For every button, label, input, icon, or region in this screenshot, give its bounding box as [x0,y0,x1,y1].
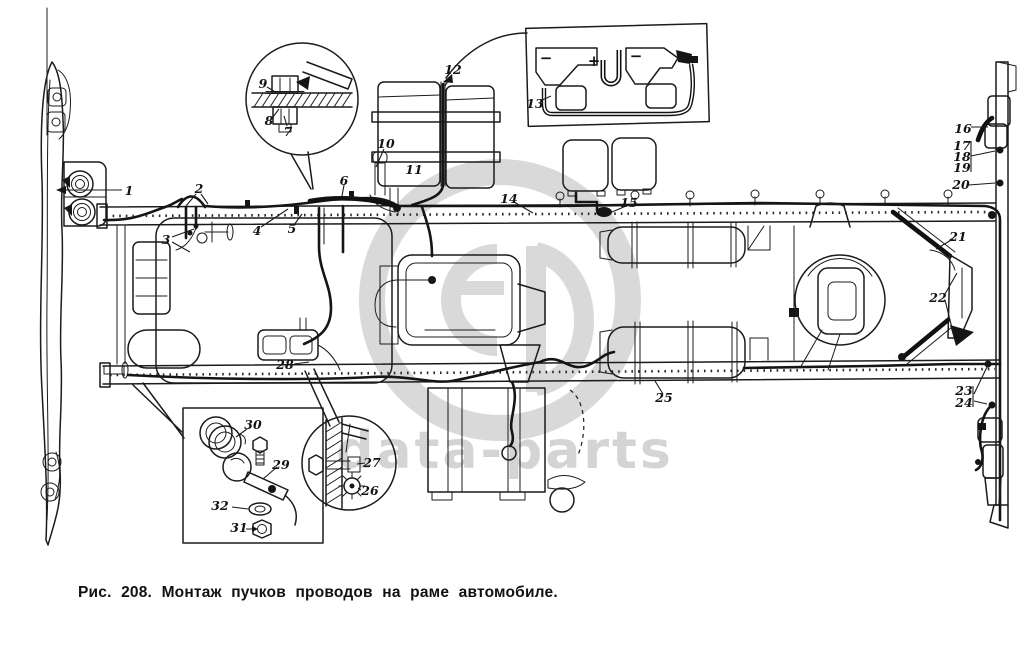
callout-19: 19 [953,160,971,175]
battery-schematic-inset: − + − [526,24,710,127]
tail-lamp-upper [978,96,1010,148]
callout-29: 29 [271,457,290,472]
callout-13: 13 [526,96,544,111]
callout-4: 4 [253,223,262,238]
battery-minus-2: − [630,47,643,65]
callout-32: 32 [211,498,229,513]
callout-16: 16 [954,121,972,136]
callout-9: 9 [259,76,268,91]
callout-6: 6 [340,173,349,188]
callout-2: 2 [194,181,204,196]
callout-5: 5 [288,221,297,236]
callout-12: 12 [444,62,462,77]
chassis-wiring-diagram: data-parts [0,0,1021,652]
callout-30: 30 [244,417,262,432]
battery-minus-1: − [540,49,553,67]
callout-21: 21 [948,229,966,244]
callout-20: 20 [951,177,970,192]
callout-28: 28 [275,357,294,372]
callout-15: 15 [620,195,637,210]
callout-10: 10 [377,136,395,151]
callout-24: 24 [954,395,972,410]
callout-7: 7 [284,124,293,139]
headlights [56,162,106,226]
callout-8: 8 [265,113,274,128]
spare-wheel [795,203,885,370]
callout-31: 31 [230,520,247,535]
callout-22: 22 [928,290,947,305]
callout-14: 14 [500,191,517,206]
figure-page: data-parts [0,0,1021,652]
callout-1: 1 [125,183,134,198]
battery-plus: + [588,52,601,70]
callout-3: 3 [162,232,171,247]
callout-27: 27 [362,455,381,470]
fastener-detail-inset [133,383,323,543]
callout-25: 25 [654,390,672,405]
figure-caption: Рис. 208. Монтаж пучков проводов на раме… [78,584,698,602]
bolt-detail-inset [246,43,358,189]
callout-26: 26 [360,483,379,498]
callout-11: 11 [405,162,422,177]
battery-pack [370,33,527,215]
cab-floor [104,218,392,383]
watermark-logo [372,172,628,428]
watermark-text: data-parts [336,421,674,481]
front-panel [41,8,71,545]
